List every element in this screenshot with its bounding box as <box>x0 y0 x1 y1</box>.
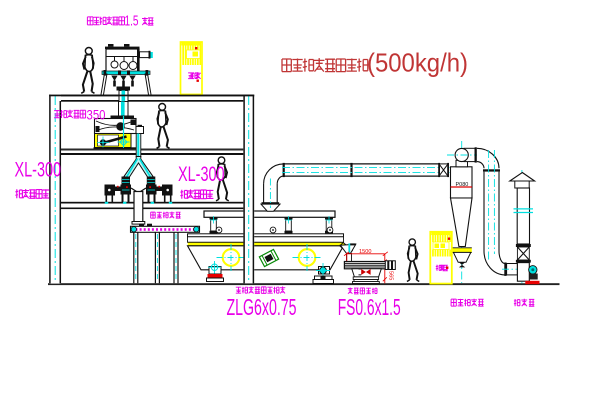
svg-text:1500: 1500 <box>359 249 371 255</box>
svg-text:1.5: 1.5 <box>125 13 139 30</box>
svg-text:XL-300: XL-300 <box>15 159 62 182</box>
svg-text:(500kg/h): (500kg/h) <box>367 48 468 78</box>
svg-text:565: 565 <box>388 271 394 280</box>
svg-text:XL-300: XL-300 <box>178 163 225 186</box>
svg-text:ZLG6x0.75: ZLG6x0.75 <box>227 294 297 320</box>
svg-text:FS0.6x1.5: FS0.6x1.5 <box>338 294 401 320</box>
svg-text:350: 350 <box>87 107 106 123</box>
